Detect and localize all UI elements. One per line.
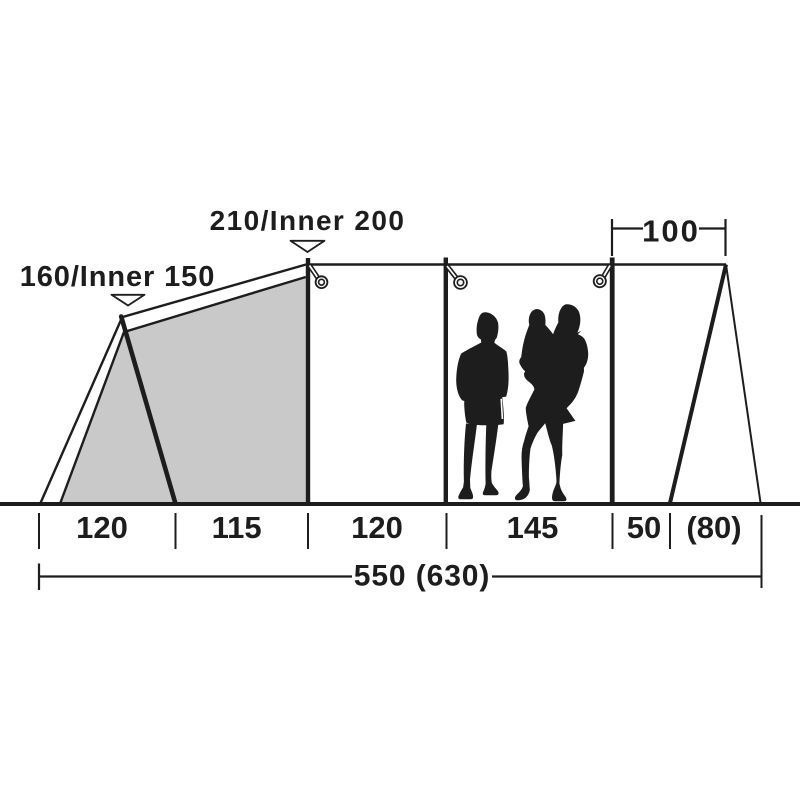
svg-text:(80): (80) (686, 510, 741, 545)
svg-text:120: 120 (351, 510, 403, 545)
svg-text:115: 115 (212, 510, 262, 545)
svg-text:210/Inner 200: 210/Inner 200 (210, 205, 406, 236)
svg-text:100: 100 (642, 214, 700, 249)
svg-text:160/Inner 150: 160/Inner 150 (20, 261, 216, 293)
svg-text:550 (630): 550 (630) (354, 560, 491, 593)
svg-text:145: 145 (507, 510, 559, 545)
svg-text:120: 120 (76, 510, 128, 545)
svg-text:50: 50 (627, 510, 661, 545)
